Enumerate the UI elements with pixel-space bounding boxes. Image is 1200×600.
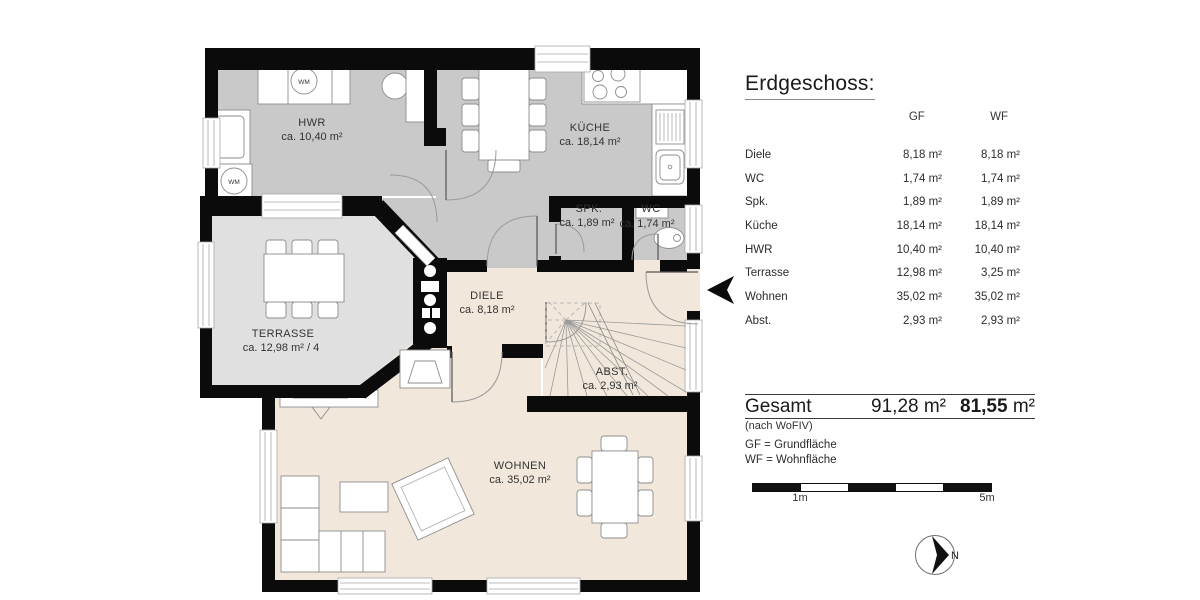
chair xyxy=(638,490,653,516)
header-spacer xyxy=(745,111,855,123)
chair xyxy=(577,490,592,516)
room-label-wc: WC xyxy=(641,203,660,215)
row-gf-value: 12,98 m² xyxy=(865,267,942,279)
row-gf-value: 8,18 m² xyxy=(865,149,942,161)
chair xyxy=(601,523,627,538)
table-row: Küche 18,14 m² 18,14 m² xyxy=(745,214,1020,238)
scale-segment xyxy=(896,484,944,491)
total-label: Gesamt xyxy=(745,396,871,418)
row-wf-value: 18,14 m² xyxy=(942,220,1020,232)
window xyxy=(685,100,702,168)
room-area-kueche: ca. 18,14 m² xyxy=(559,136,620,148)
window xyxy=(487,578,580,594)
table-header: GF WF xyxy=(745,111,1020,123)
row-gf-value: 1,74 m² xyxy=(865,173,942,185)
scale-segment xyxy=(943,484,991,491)
window xyxy=(203,118,220,168)
room-area-hwr: ca. 10,40 m² xyxy=(281,131,342,143)
room-area-wc: ca. 1,74 m² xyxy=(619,218,674,230)
legend-gf: GF = Grundfläche xyxy=(745,438,837,453)
window xyxy=(262,194,342,218)
row-label: Diele xyxy=(745,149,865,161)
room-area-spk: ca. 1,89 m² xyxy=(559,217,614,229)
compass: N xyxy=(903,527,973,583)
burner-icon xyxy=(593,85,607,99)
window xyxy=(685,320,702,392)
chair xyxy=(529,130,546,152)
chair xyxy=(462,104,479,126)
row-gf-value: 35,02 m² xyxy=(865,291,942,303)
wm-label: WM xyxy=(298,79,310,86)
chair xyxy=(529,78,546,100)
sofa xyxy=(281,476,319,572)
boiler-icon xyxy=(382,73,408,99)
entrance-arrow-icon xyxy=(707,276,734,304)
faucet-icon xyxy=(668,165,672,169)
chair xyxy=(292,302,312,318)
chair xyxy=(638,457,653,483)
window xyxy=(535,46,590,72)
row-gf-value: 10,40 m² xyxy=(865,244,942,256)
room-label-terrasse: TERRASSE xyxy=(252,328,315,340)
total-wf-unit: m² xyxy=(1008,396,1035,417)
wm-label: WM xyxy=(228,179,240,186)
total-wf-value: 81,55 m² xyxy=(960,396,1035,418)
floor-plan: HWR ca. 10,40 m² KÜCHE ca. 18,14 m² SPK.… xyxy=(0,0,740,600)
table-row: Wohnen 35,02 m² 35,02 m² xyxy=(745,285,1020,309)
chair xyxy=(318,302,338,318)
room-area-diele: ca. 8,18 m² xyxy=(459,304,514,316)
window xyxy=(685,456,702,521)
table-row: Spk. 1,89 m² 1,89 m² xyxy=(745,190,1020,214)
room-area-abst: ca. 2,93 m² xyxy=(582,380,637,392)
row-wf-value: 2,93 m² xyxy=(942,315,1020,327)
room-spk-floor xyxy=(561,208,622,260)
row-wf-value: 10,40 m² xyxy=(942,244,1020,256)
row-label: Wohnen xyxy=(745,291,865,303)
dining-table xyxy=(592,451,638,523)
row-label: Abst. xyxy=(745,315,865,327)
total-row: Gesamt 91,28 m² 81,55 m² xyxy=(745,394,1035,419)
scale-segment xyxy=(848,484,896,491)
chair xyxy=(462,130,479,152)
row-label: Terrasse xyxy=(745,267,865,279)
room-label-diele: DIELE xyxy=(470,290,504,302)
scale-segment xyxy=(753,484,801,491)
chair xyxy=(577,457,592,483)
window xyxy=(685,205,702,253)
table-row: HWR 10,40 m² 10,40 m² xyxy=(745,238,1020,262)
column-header-wf: WF xyxy=(937,111,1020,123)
scale-segment xyxy=(801,484,849,491)
chair xyxy=(462,78,479,100)
room-area-wohnen: ca. 35,02 m² xyxy=(489,474,550,486)
room-label-wohnen: WOHNEN xyxy=(494,460,547,472)
room-label-kueche: KÜCHE xyxy=(570,122,611,134)
chair xyxy=(529,104,546,126)
row-gf-value: 1,89 m² xyxy=(865,196,942,208)
window xyxy=(260,430,277,523)
chair xyxy=(266,302,286,318)
window xyxy=(198,242,214,328)
toilet-flush xyxy=(674,235,681,242)
legend: GF = Grundfläche WF = Wohnfläche xyxy=(745,438,837,468)
room-label-abst: ABST. xyxy=(596,366,629,378)
chair xyxy=(601,436,627,451)
legend-wf: WF = Wohnfläche xyxy=(745,453,837,468)
total-note: (nach WoFIV) xyxy=(745,420,813,432)
sofa xyxy=(319,531,385,572)
total-gf-value: 91,28 m² xyxy=(871,396,946,418)
burner-icon xyxy=(593,71,604,82)
compass-n-label: N xyxy=(951,550,959,562)
total-wf-number: 81,55 xyxy=(960,396,1008,417)
row-wf-value: 1,74 m² xyxy=(942,173,1020,185)
page: HWR ca. 10,40 m² KÜCHE ca. 18,14 m² SPK.… xyxy=(0,0,1200,600)
row-gf-value: 2,93 m² xyxy=(865,315,942,327)
row-wf-value: 1,89 m² xyxy=(942,196,1020,208)
table-row: WC 1,74 m² 1,74 m² xyxy=(745,167,1020,191)
window xyxy=(338,578,432,594)
row-label: Spk. xyxy=(745,196,865,208)
row-wf-value: 3,25 m² xyxy=(942,267,1020,279)
scale-label-5m: 5m xyxy=(973,492,1001,504)
page-title: Erdgeschoss: xyxy=(745,72,875,100)
room-area-terrasse: ca. 12,98 m² / 4 xyxy=(243,342,319,354)
burner-icon xyxy=(616,87,627,98)
area-table: Diele 8,18 m² 8,18 m² WC 1,74 m² 1,74 m²… xyxy=(745,143,1020,333)
room-label-spk: SPK. xyxy=(576,203,603,215)
row-gf-value: 18,14 m² xyxy=(865,220,942,232)
row-label: Küche xyxy=(745,220,865,232)
row-wf-value: 8,18 m² xyxy=(942,149,1020,161)
column-header-gf: GF xyxy=(855,111,937,123)
row-label: HWR xyxy=(745,244,865,256)
dining-table xyxy=(479,68,529,160)
terrace-table xyxy=(264,254,344,302)
entrance-opening xyxy=(687,269,700,311)
coffee-table xyxy=(340,482,388,512)
table-row: Diele 8,18 m² 8,18 m² xyxy=(745,143,1020,167)
row-wf-value: 35,02 m² xyxy=(942,291,1020,303)
scale-bar xyxy=(752,483,992,492)
scale-label-1m: 1m xyxy=(786,492,814,504)
row-label: WC xyxy=(745,173,865,185)
table-row: Terrasse 12,98 m² 3,25 m² xyxy=(745,261,1020,285)
bench xyxy=(488,160,520,172)
room-label-hwr: HWR xyxy=(298,117,325,129)
table-row: Abst. 2,93 m² 2,93 m² xyxy=(745,309,1020,333)
fireplace xyxy=(400,350,450,388)
